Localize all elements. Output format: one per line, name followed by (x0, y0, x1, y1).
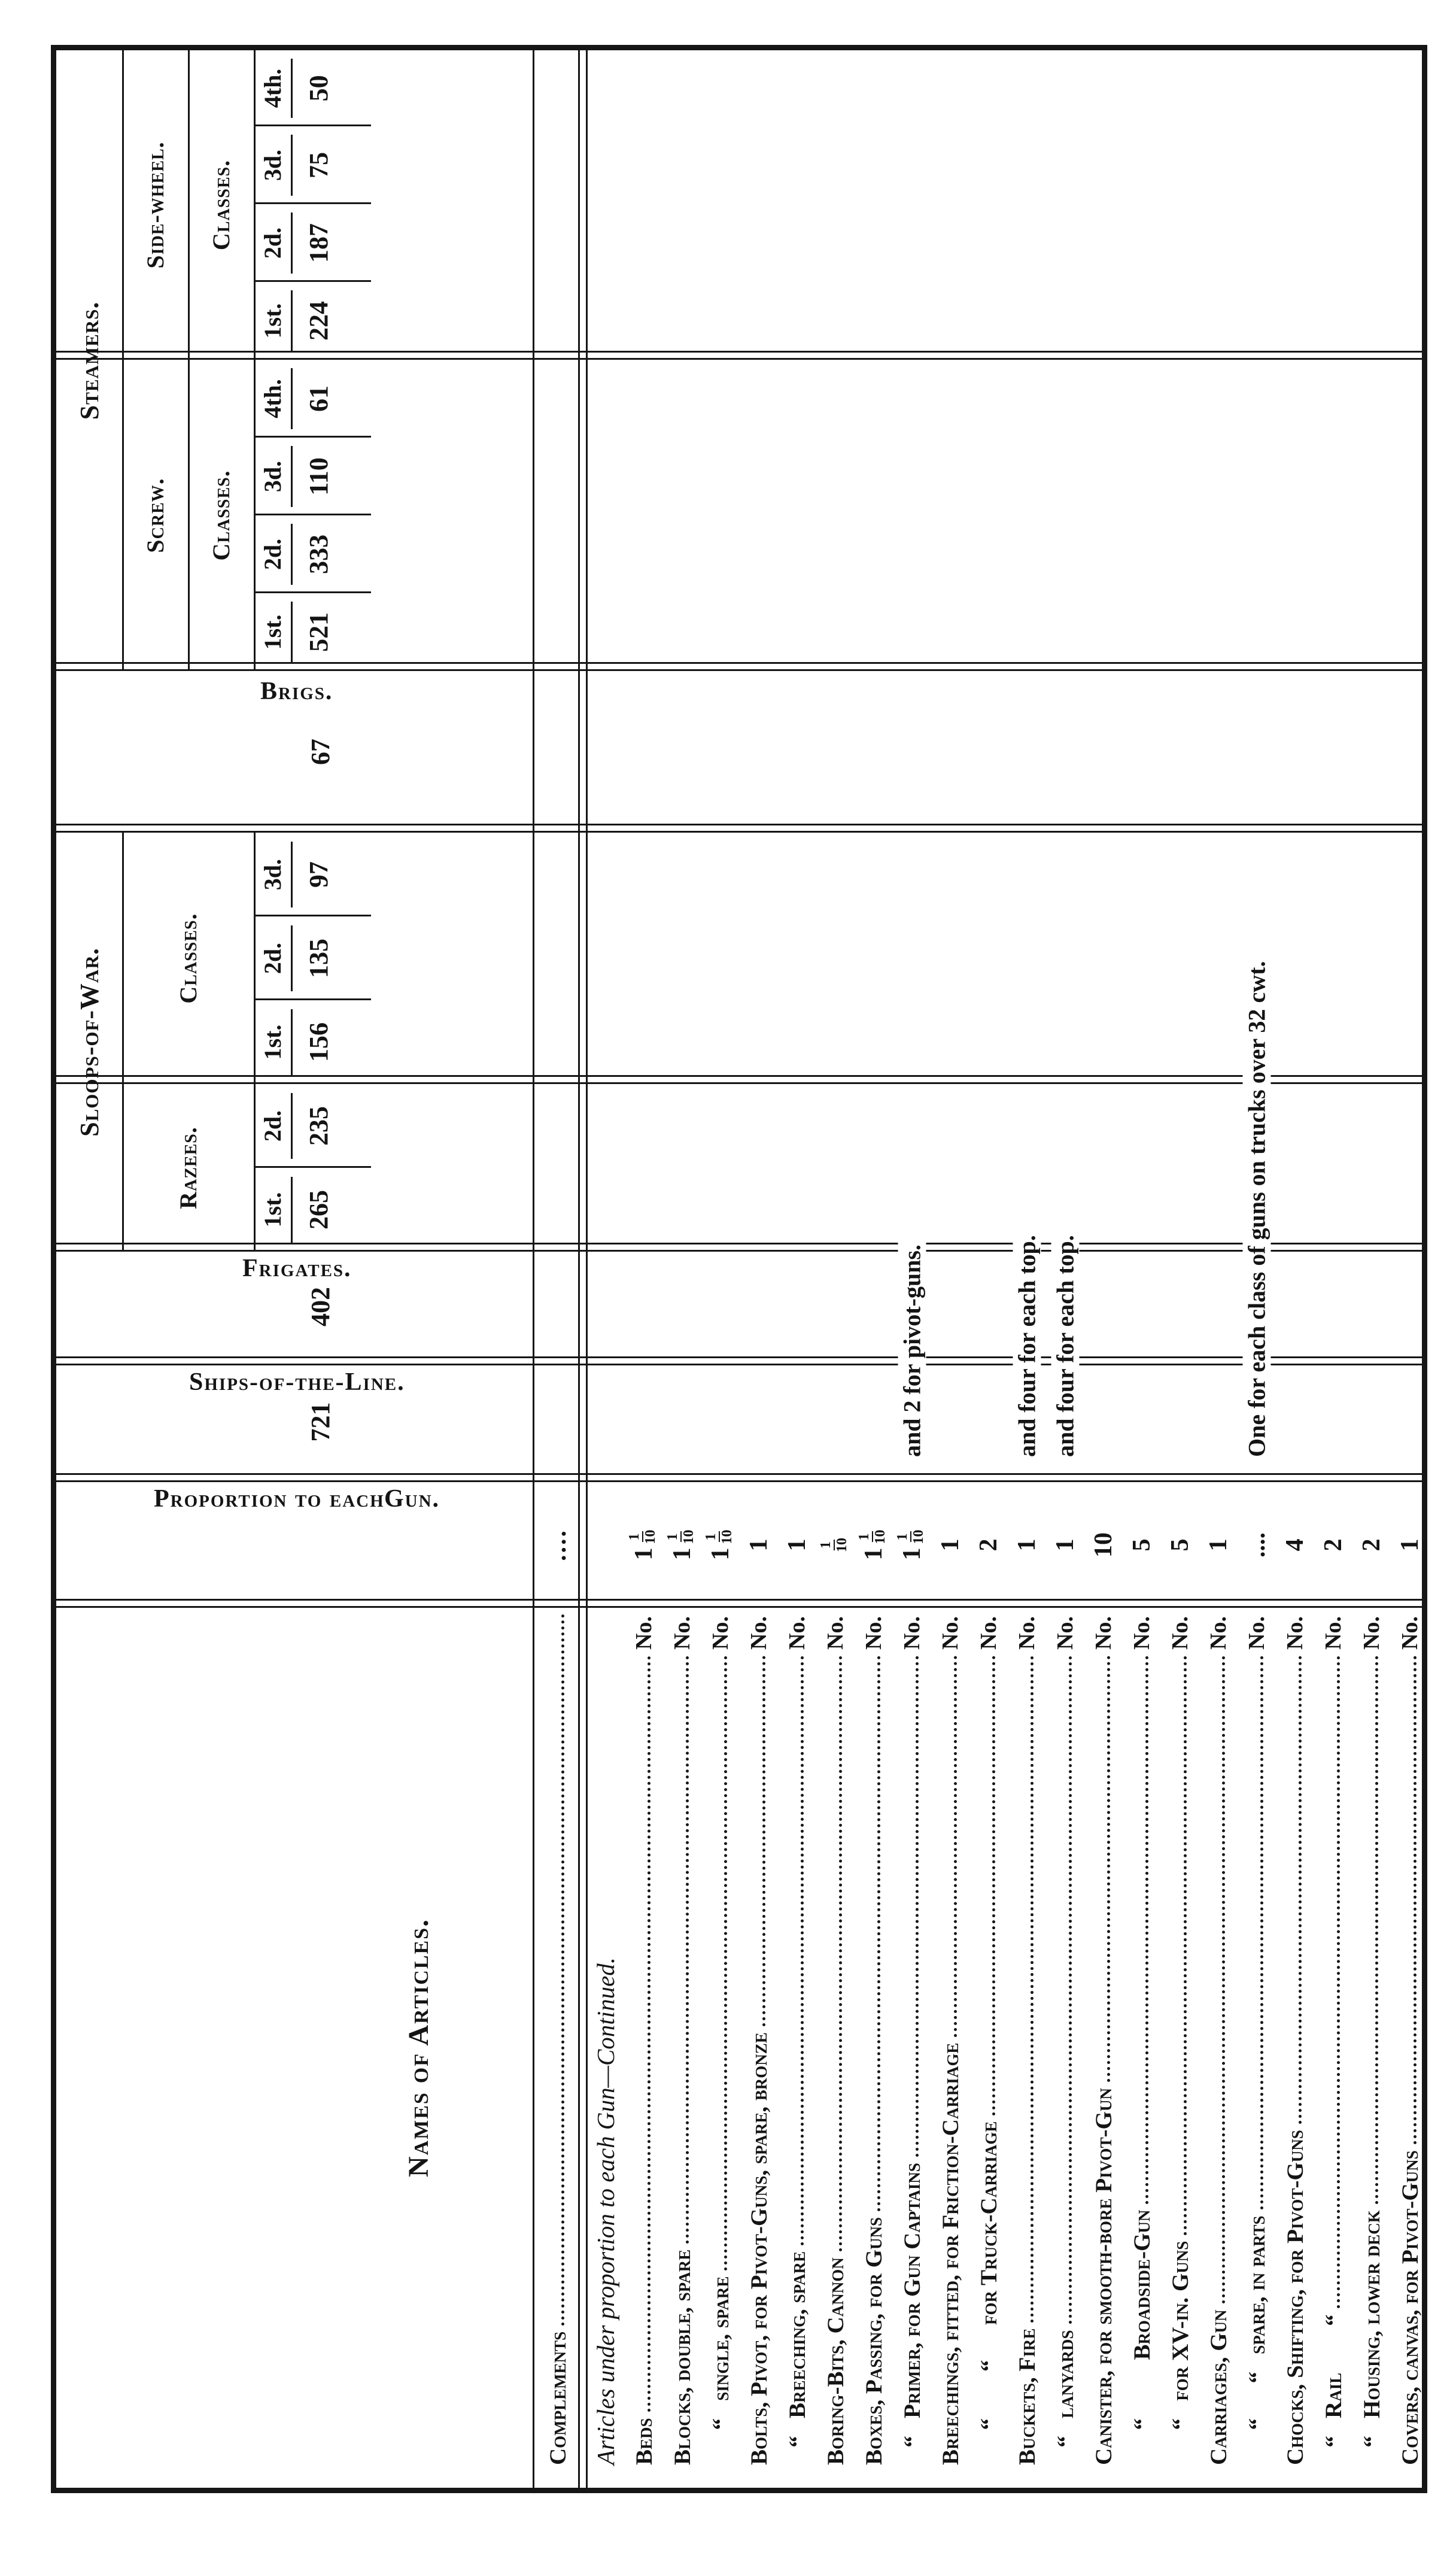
sloops-of-war-label: Sloops-of-War. (74, 948, 105, 1137)
names-of-articles-header: Names of Articles. (56, 1608, 529, 2488)
razees-label: Razees. (174, 1127, 202, 1209)
proportion-value-cell: 2 (1314, 1482, 1352, 1608)
sw-1st-label: 1st. (254, 303, 291, 339)
article-name-cell: Blocks, double, spare No. (669, 1608, 696, 2488)
side-wheel-label: Side-wheel. (141, 141, 169, 268)
article-name-cell: Boxes, Passing, for Guns No. (861, 1608, 887, 2488)
article-name-cell: “ Broadside-Gun No. (1129, 1608, 1156, 2488)
dotted-leader (1298, 1656, 1302, 2124)
razee-2d-complement: 235 (293, 1106, 344, 1146)
article-name: Buckets, Fire (1014, 2329, 1041, 2465)
complements-leader (561, 1614, 564, 2326)
proportion-value-cell: 5 (1161, 1482, 1199, 1608)
fraction-denominator: 10 (835, 1538, 850, 1552)
fraction-numerator: 1 (857, 1532, 873, 1543)
fraction-numerator: 1 (665, 1532, 682, 1543)
unit-abbrev: No. (1014, 1608, 1040, 1650)
razee-2d-cell: 2d. 235 (254, 1084, 535, 1168)
proportion-header: Proportion to each Gun. (56, 1485, 517, 1602)
article-name: Articles under proportion to each Gun—Co… (591, 1957, 620, 2465)
dotted-leader (838, 1656, 842, 2251)
table-row: Buckets, Fire No. 1 and four for each to… (1008, 50, 1046, 2488)
screw-3d-complement: 110 (293, 457, 344, 496)
screw-2d-complement: 333 (293, 535, 344, 574)
dotted-leader (1145, 1656, 1148, 2204)
proportion-value-cell: 1 (931, 1482, 969, 1608)
sw-4th-label: 4th. (254, 69, 291, 108)
sloop-1st-complement: 156 (293, 1022, 344, 1062)
sw-3d-label: 3d. (254, 150, 291, 181)
unit-abbrev: No. (1129, 1608, 1155, 1650)
sw-1st-complement: 224 (293, 301, 344, 341)
screw-classes-label: Classes. (207, 470, 235, 560)
article-name: Boring-Bits, Cannon (822, 2257, 849, 2465)
article-name-cell: “ single, spare No. (707, 1608, 734, 2488)
dotted-leader (1375, 1656, 1378, 2204)
fraction-denominator: 10 (682, 1530, 697, 1544)
proportion-value-cell (586, 1482, 625, 1608)
proportion-value-dots: .... (1242, 1532, 1271, 1558)
article-name: Blocks, double, spare (669, 2250, 696, 2465)
brigs-complement: 67 (305, 677, 336, 827)
article-name: Covers, canvas, for Pivot-Guns (1397, 2150, 1424, 2465)
article-name: “ Housing, lower deck (1358, 2210, 1385, 2465)
screw-3d-cell: 3d. 110 (254, 438, 535, 515)
dotted-leader (1336, 1656, 1340, 2308)
proportion-value-cell: 2 (969, 1482, 1008, 1608)
unit-abbrev: No. (1282, 1608, 1308, 1650)
dotted-leader (1068, 1656, 1072, 2324)
screw-4th-cell: 4th. 61 (254, 360, 535, 438)
proportion-value-whole: 1 (1204, 1539, 1233, 1552)
unit-abbrev: No. (861, 1608, 887, 1650)
fraction-numerator: 1 (895, 1532, 911, 1543)
proportion-value-cell: 4 (1276, 1482, 1314, 1608)
article-name-cell: Beds No. (631, 1608, 658, 2488)
dotted-leader (1260, 1656, 1263, 2209)
proportion-value-cell: 1 1 10 (893, 1482, 931, 1608)
screw-3d-label: 3d. (254, 461, 291, 492)
table-row: Articles under proportion to each Gun—Co… (586, 50, 625, 2488)
proportion-value-fraction: 1 10 (665, 1530, 697, 1544)
proportion-value-whole: 1 (668, 1548, 697, 1561)
proportion-value-cell: .... (1238, 1482, 1276, 1608)
sw-1st-cell: 1st. 224 (254, 282, 535, 360)
table-row: Blocks, double, spare No. 1 1 10 (663, 50, 701, 2488)
scanned-document-page: Names of Articles. Proportion to each Gu… (0, 0, 1456, 2553)
screw-1st-label: 1st. (254, 615, 291, 650)
rotated-table-wrapper: Names of Articles. Proportion to each Gu… (51, 45, 1427, 2493)
steamers-label: Steamers. (74, 302, 105, 420)
article-name: Bolts, Pivot, for Pivot-Guns, spare, bro… (746, 2032, 773, 2465)
fraction-numerator: 1 (627, 1532, 643, 1543)
article-name: “ for XV-in. Guns (1167, 2241, 1194, 2465)
article-name-cell: Boring-Bits, Cannon No. (822, 1608, 849, 2488)
table-row: Boxes, Passing, for Guns No. 1 1 10 (855, 50, 893, 2488)
ships-of-the-line-complement: 721 (305, 1368, 336, 1476)
proportion-value-whole: 1 (859, 1548, 888, 1561)
proportion-value-cell: 1 1 10 (701, 1482, 740, 1608)
article-name-cell: “ Housing, lower deck No. (1358, 1608, 1385, 2488)
table-row: Bolts, Pivot, for Pivot-Guns, spare, bro… (740, 50, 778, 2488)
proportion-value-whole: 1 (1396, 1539, 1424, 1552)
unit-abbrev: No. (746, 1608, 772, 1650)
article-name: “ Broadside-Gun (1129, 2210, 1156, 2465)
proportion-value-cell: 1 10 (816, 1482, 855, 1608)
table-row: Canister, for smooth-bore Pivot-Gun No. … (1084, 50, 1123, 2488)
row-note: One for each class of guns on trucks ove… (1243, 952, 1271, 1467)
sloop-1st-cell: 1st. 156 (254, 1000, 535, 1084)
unit-abbrev: No. (1244, 1608, 1270, 1650)
article-name: “ Breeching, spare (784, 2251, 811, 2465)
complements-label: Complements (545, 2332, 572, 2465)
sw-4th-cell: 4th. 50 (254, 50, 535, 126)
article-name: Breechings, fitted, for Friction-Carriag… (937, 2043, 964, 2465)
screw-header: Screw. (122, 360, 188, 671)
article-name: “ single, spare (707, 2276, 734, 2465)
sw-4th-complement: 50 (293, 75, 344, 102)
dotted-leader (1030, 1656, 1034, 2323)
table-row: “ Rail “ No. 2 (1314, 50, 1352, 2488)
screw-1st-cell: 1st. 521 (254, 593, 535, 671)
razee-1st-cell: 1st. 265 (254, 1168, 535, 1252)
screw-2d-label: 2d. (254, 539, 291, 570)
razee-2d-label: 2d. (254, 1110, 291, 1142)
frigates-header: Frigates. (56, 1254, 517, 1359)
sloop-classes-header: Classes. (122, 833, 254, 1084)
article-name: Beds (631, 2418, 658, 2465)
proportion-value-whole: 5 (1127, 1539, 1156, 1552)
article-name-cell: Articles under proportion to each Gun—Co… (591, 1608, 620, 2488)
article-name: “ “ for Truck-Carriage (975, 2121, 1002, 2465)
screw-1st-complement: 521 (293, 612, 344, 652)
side-wheel-header: Side-wheel. (122, 50, 188, 360)
article-name-cell: “ Breeching, spare No. (784, 1608, 811, 2488)
sw-classes-header: Classes. (188, 50, 254, 360)
article-name: “ “ spare, in parts (1244, 2215, 1270, 2465)
table-row: Beds No. 1 1 10 (625, 50, 663, 2488)
names-of-articles-label: Names of Articles. (402, 1918, 435, 2177)
unit-abbrev: No. (1358, 1608, 1385, 1650)
row-note: and 2 for pivot-guns. (898, 1235, 926, 1467)
proportion-value-cell: 1 (1046, 1482, 1084, 1608)
row-note: and four for each top. (1013, 1225, 1041, 1467)
proportion-value-cell: 1 (1008, 1482, 1046, 1608)
proportion-value-whole: 1 (744, 1539, 773, 1552)
steamers-header: Steamers. (56, 50, 122, 671)
table-row: “ Breeching, spare No. 1 (778, 50, 816, 2488)
brigs-header: Brigs. (56, 677, 517, 827)
sw-classes-label: Classes. (207, 160, 235, 250)
unit-abbrev: No. (631, 1608, 657, 1650)
proportion-value-whole: 1 (1051, 1539, 1080, 1552)
sw-2d-complement: 187 (293, 223, 344, 263)
proportion-value-whole: 2 (1319, 1539, 1348, 1552)
article-name-cell: Carriages, Gun No. (1205, 1608, 1232, 2488)
row-note: and four for each top. (1051, 1225, 1080, 1467)
fraction-denominator: 10 (720, 1530, 735, 1544)
fraction-numerator: 1 (704, 1532, 720, 1543)
proportion-label-line1: Proportion to each (154, 1485, 385, 1602)
screw-label: Screw. (141, 478, 169, 553)
sloop-2d-complement: 135 (293, 939, 344, 978)
razees-header: Razees. (122, 1084, 254, 1252)
sw-3d-cell: 3d. 75 (254, 126, 535, 204)
proportion-value-fraction: 1 10 (895, 1530, 926, 1544)
sloops-of-war-header: Sloops-of-War. (56, 833, 122, 1252)
unit-abbrev: No. (1397, 1608, 1423, 1650)
table-row: “ “ for Truck-Carriage No. 2 (969, 50, 1008, 2488)
article-name: Chocks, Shifting, for Pivot-Guns (1282, 2130, 1309, 2465)
unit-abbrev: No. (707, 1608, 734, 1650)
article-name: “ Rail “ (1320, 2314, 1347, 2465)
dotted-leader (724, 1656, 727, 2270)
dotted-leader (647, 1656, 651, 2412)
dotted-leader (915, 1656, 919, 2157)
article-name-cell: “ “ spare, in parts No. (1244, 1608, 1270, 2488)
article-name: “ lanyards (1052, 2330, 1079, 2465)
unit-abbrev: No. (1052, 1608, 1078, 1650)
fraction-denominator: 10 (873, 1530, 888, 1544)
dotted-leader (800, 1656, 804, 2245)
proportion-value-whole: 1 (898, 1548, 926, 1561)
table-row: Breechings, fitted, for Friction-Carriag… (931, 50, 969, 2488)
proportion-value-whole: 2 (1357, 1539, 1386, 1552)
sloop-2d-label: 2d. (254, 943, 291, 974)
proportion-value-whole: 2 (974, 1539, 1003, 1552)
proportion-value-whole: 10 (1089, 1532, 1118, 1558)
sloop-1st-label: 1st. (254, 1025, 291, 1060)
proportion-value-whole: 5 (1166, 1539, 1194, 1552)
proportion-value-cell: 1 1 10 (663, 1482, 701, 1608)
table-row: “ lanyards No. 1 and four for each top. (1046, 50, 1084, 2488)
article-rows: Articles under proportion to each Gun—Co… (586, 50, 1429, 2488)
unit-abbrev: No. (1320, 1608, 1346, 1650)
proportion-value-cell: 5 (1123, 1482, 1161, 1608)
article-name-cell: Breechings, fitted, for Friction-Carriag… (937, 1608, 964, 2488)
sw-2d-cell: 2d. 187 (254, 204, 535, 282)
table-row: “ for XV-in. Guns No. 5 (1161, 50, 1199, 2488)
table-row: “ Housing, lower deck No. 2 (1352, 50, 1391, 2488)
dotted-leader (685, 1656, 689, 2244)
sloop-3d-label: 3d. (254, 859, 291, 890)
sw-3d-complement: 75 (293, 152, 344, 178)
proportion-value-fraction: 1 10 (819, 1538, 850, 1552)
table-row: Carriages, Gun No. 1 (1199, 50, 1238, 2488)
screw-4th-complement: 61 (293, 385, 344, 412)
fraction-numerator: 1 (819, 1540, 835, 1550)
proportion-value-cell: 1 (778, 1482, 816, 1608)
unit-abbrev: No. (1205, 1608, 1232, 1650)
article-name-cell: Bolts, Pivot, for Pivot-Guns, spare, bro… (746, 1608, 773, 2488)
article-name-cell: Chocks, Shifting, for Pivot-Guns No. (1282, 1608, 1309, 2488)
article-name: Carriages, Gun (1205, 2309, 1232, 2465)
article-name: Boxes, Passing, for Guns (861, 2217, 887, 2465)
screw-4th-label: 4th. (254, 379, 291, 418)
article-name-cell: Buckets, Fire No. (1014, 1608, 1041, 2488)
dotted-leader (953, 1656, 957, 2037)
sw-2d-label: 2d. (254, 227, 291, 259)
dotted-leader (877, 1656, 880, 2211)
unit-abbrev: No. (899, 1608, 925, 1650)
proportion-value-cell: 2 (1352, 1482, 1391, 1608)
article-name-cell: “ for XV-in. Guns No. (1167, 1608, 1194, 2488)
article-name-cell: “ lanyards No. (1052, 1608, 1079, 2488)
fraction-denominator: 10 (643, 1530, 658, 1544)
article-name-cell: Covers, canvas, for Pivot-Guns No. (1397, 1608, 1424, 2488)
unit-abbrev: No. (1167, 1608, 1193, 1650)
article-name: Canister, for smooth-bore Pivot-Gun (1090, 2088, 1117, 2465)
table-row: “ Broadside-Gun No. 5 (1123, 50, 1161, 2488)
proportion-value-cell: 1 (740, 1482, 778, 1608)
article-name: “ Primer, for Gun Captains (899, 2163, 926, 2465)
proportion-value-whole: 1 (630, 1548, 658, 1561)
screw-classes-header: Classes. (188, 360, 254, 671)
article-name-cell: “ Rail “ No. (1320, 1608, 1347, 2488)
proportion-value-cell: 1 1 10 (855, 1482, 893, 1608)
razee-1st-complement: 265 (293, 1190, 344, 1230)
table-row: “ Primer, for Gun Captains No. 1 1 10 an… (893, 50, 931, 2488)
sloop-classes-label: Classes. (174, 913, 202, 1003)
proportion-value-whole: 4 (1281, 1539, 1309, 1552)
table-row: Chocks, Shifting, for Pivot-Guns No. 4 (1276, 50, 1314, 2488)
dotted-leader (992, 1656, 995, 2115)
proportion-value-fraction: 1 10 (627, 1530, 658, 1544)
table-row: Covers, canvas, for Pivot-Guns No. 1 (1391, 50, 1429, 2488)
ships-of-the-line-label: Ships-of-the-Line. (189, 1368, 405, 1476)
dotted-leader (762, 1656, 765, 2026)
complements-row: Complements .... (535, 50, 580, 2488)
table-row: Boring-Bits, Cannon No. 1 10 (816, 50, 855, 2488)
unit-abbrev: No. (937, 1608, 963, 1650)
proportion-value-whole: 1 (1013, 1539, 1041, 1552)
article-name-cell: “ Primer, for Gun Captains No. (899, 1608, 926, 2488)
sloop-3d-cell: 3d. 97 (254, 833, 535, 916)
unit-abbrev: No. (822, 1608, 849, 1650)
dotted-leader (1413, 1656, 1417, 2144)
dotted-leader (1107, 1656, 1110, 2082)
screw-2d-cell: 2d. 333 (254, 515, 535, 593)
ships-of-the-line-header: Ships-of-the-Line. (56, 1368, 517, 1476)
fraction-denominator: 10 (911, 1530, 926, 1544)
razee-1st-label: 1st. (254, 1192, 291, 1228)
proportion-value-fraction: 1 10 (704, 1530, 735, 1544)
proportion-value-whole: 1 (706, 1548, 735, 1561)
frigates-complement: 402 (305, 1254, 336, 1359)
dotted-leader (1221, 1656, 1225, 2304)
sloop-3d-complement: 97 (293, 861, 344, 888)
table-row: “ “ spare, in parts No. .... One for eac… (1238, 50, 1276, 2488)
unit-abbrev: No. (669, 1608, 695, 1650)
sloop-2d-cell: 2d. 135 (254, 916, 535, 1000)
proportion-value-fraction: 1 10 (857, 1530, 888, 1544)
proportion-value-cell: 10 (1084, 1482, 1123, 1608)
ordnance-complements-table: Names of Articles. Proportion to each Gu… (51, 45, 1427, 2493)
article-name-cell: “ “ for Truck-Carriage No. (975, 1608, 1002, 2488)
proportion-value-whole: 1 (783, 1539, 811, 1552)
article-name-cell: Canister, for smooth-bore Pivot-Gun No. (1090, 1608, 1117, 2488)
unit-abbrev: No. (784, 1608, 810, 1650)
proportion-value-cell: 1 1 10 (625, 1482, 663, 1608)
proportion-value-cell: 1 (1199, 1482, 1238, 1608)
complements-proportion-dots: .... (543, 1482, 572, 1608)
proportion-value-cell: 1 (1391, 1482, 1429, 1608)
dotted-leader (1183, 1656, 1187, 2235)
proportion-value-whole: 1 (936, 1539, 965, 1552)
proportion-label-line2: Gun. (384, 1485, 440, 1602)
table-row: “ single, spare No. 1 1 10 (701, 50, 740, 2488)
unit-abbrev: No. (1090, 1608, 1117, 1650)
unit-abbrev: No. (975, 1608, 1002, 1650)
